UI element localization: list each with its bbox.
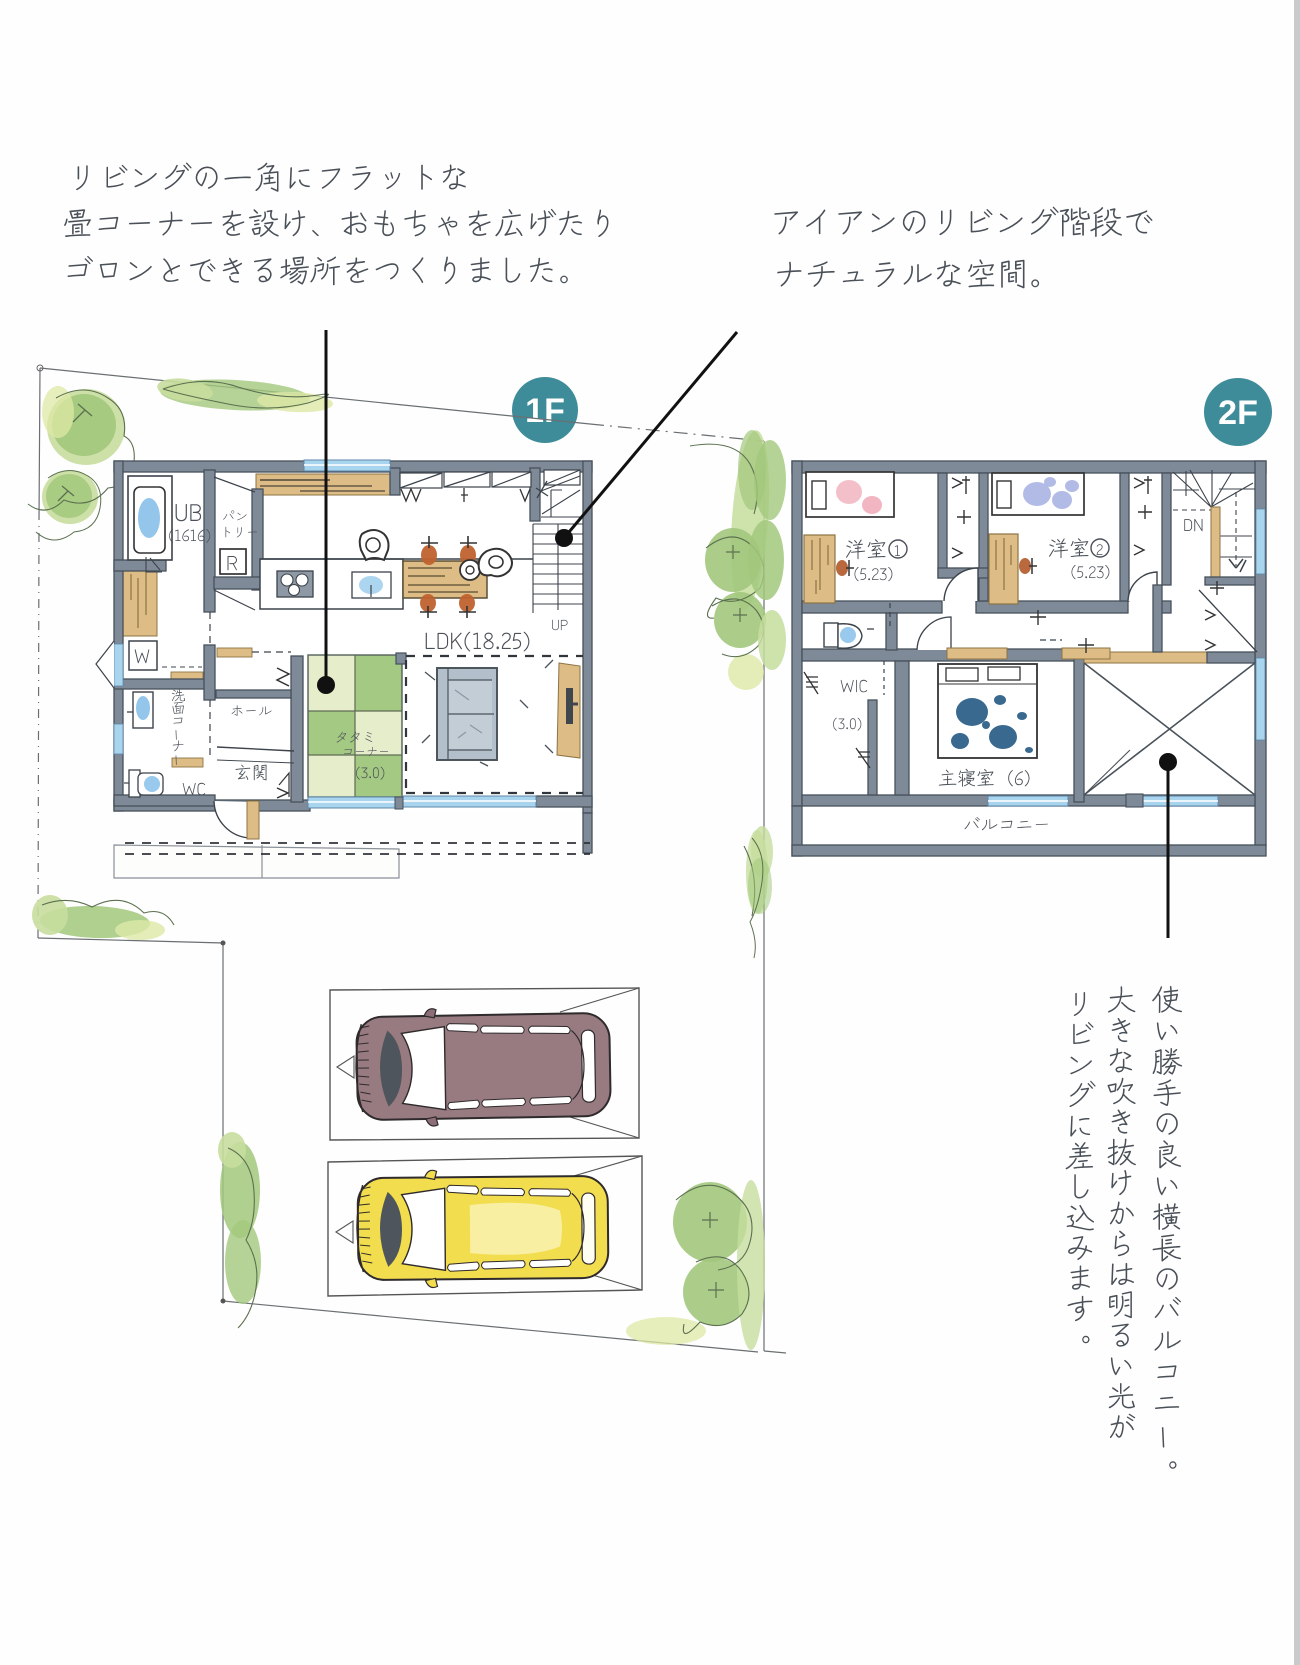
svg-text:2F: 2F <box>1218 394 1258 432</box>
svg-text:1F: 1F <box>525 392 565 430</box>
